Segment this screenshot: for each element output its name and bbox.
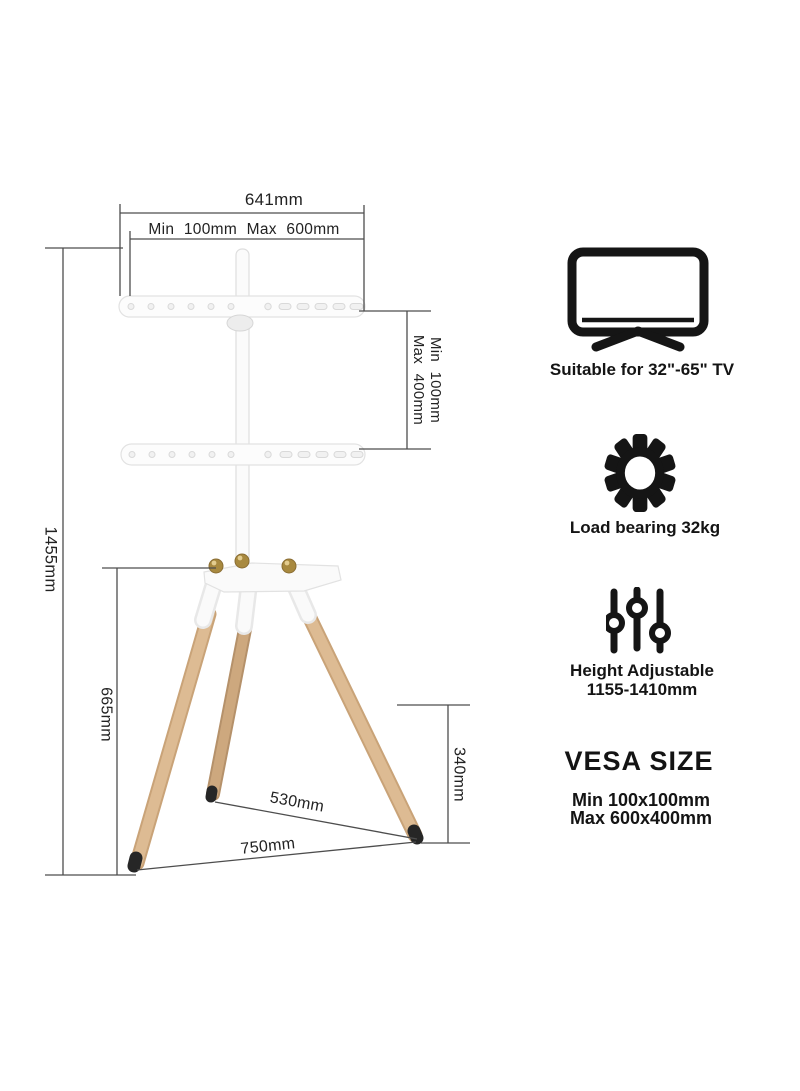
right-leg-foot [414,831,417,838]
product-spec-image: 641mm Min 100mm Max 600mm Min 100mm Max … [0,0,800,1091]
tripod-legs [134,612,417,866]
left-leg-foot [134,858,136,866]
top-mount-bracket [119,296,365,317]
dim-mount-height-max-label: Max 400mm [410,332,427,428]
tv-icon [566,247,710,353]
dim-mount-width-label: Min 100mm Max 600mm [144,221,344,238]
tilt-collar [227,315,253,331]
dim-total-height-label: 1455mm [42,525,59,595]
dim-hub-height-label: 665mm [98,684,115,746]
dim-total-width-label: 641mm [214,191,334,208]
gear-icon [600,432,680,514]
feature-load-label: Load bearing 32kg [515,518,775,538]
feature-height-label-line1: Height Adjustable [512,661,772,681]
lower-mount-bracket [121,444,365,465]
feature-tv-label: Suitable for 32"-65" TV [512,360,772,380]
vesa-max-label: Max 600x400mm [491,808,791,829]
dim-mount-height-min-label: Min 100mm [427,332,444,428]
tripod-hub [204,563,341,592]
feature-height-label-line2: 1155-1410mm [512,680,772,700]
rear-leg-foot [211,791,212,797]
sliders-icon [606,587,672,655]
dim-rear-height-label: 340mm [451,744,468,806]
tv-stand-diagram [0,0,800,1091]
vesa-size-heading: VESA SIZE [489,746,789,777]
